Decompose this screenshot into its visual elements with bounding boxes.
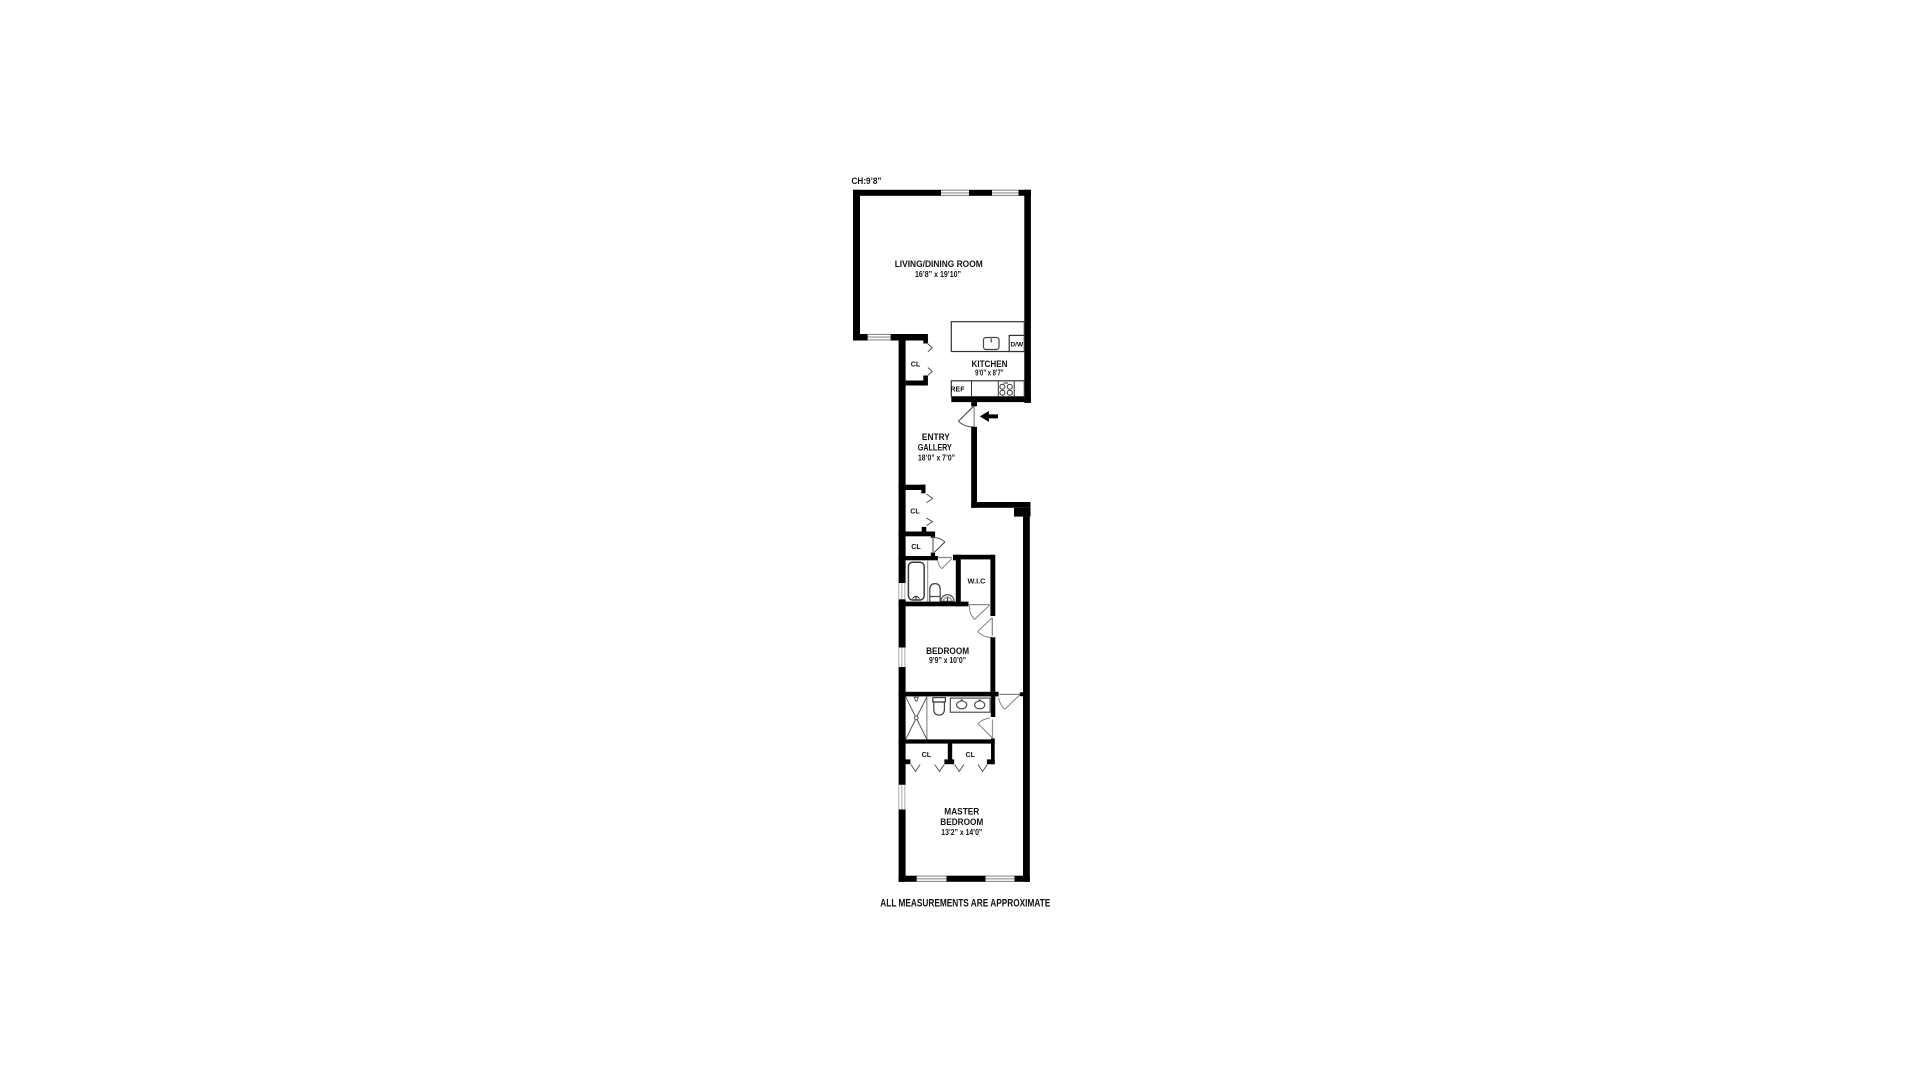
svg-text:18’0” x 7’0”: 18’0” x 7’0” [918,453,955,462]
svg-text:CL: CL [910,507,920,516]
svg-text:LIVING/DINING ROOM: LIVING/DINING ROOM [895,259,983,270]
svg-text:9’0” x 8’7”: 9’0” x 8’7” [975,369,1004,378]
svg-text:9’9” x 10’0”: 9’9” x 10’0” [929,656,966,665]
svg-text:D/W: D/W [1011,341,1024,348]
svg-text:13’2” x 14’0”: 13’2” x 14’0” [941,828,982,837]
svg-text:16’8” x 19’10”: 16’8” x 19’10” [915,270,961,279]
svg-text:CL: CL [911,542,921,551]
svg-text:ALL MEASUREMENTS ARE APPROXIMA: ALL MEASUREMENTS ARE APPROXIMATE [880,898,1050,910]
svg-text:CL: CL [965,750,975,759]
svg-text:CL: CL [922,750,932,759]
svg-text:CH:9’8”: CH:9’8” [852,176,882,187]
svg-text:MASTER: MASTER [944,807,979,818]
svg-text:BEDROOM: BEDROOM [940,817,983,828]
svg-text:GALLERY: GALLERY [918,443,952,454]
svg-text:W.I.C: W.I.C [968,579,986,586]
svg-text:REF: REF [951,385,966,394]
svg-text:ENTRY: ENTRY [922,432,951,443]
svg-text:CL: CL [911,359,921,368]
